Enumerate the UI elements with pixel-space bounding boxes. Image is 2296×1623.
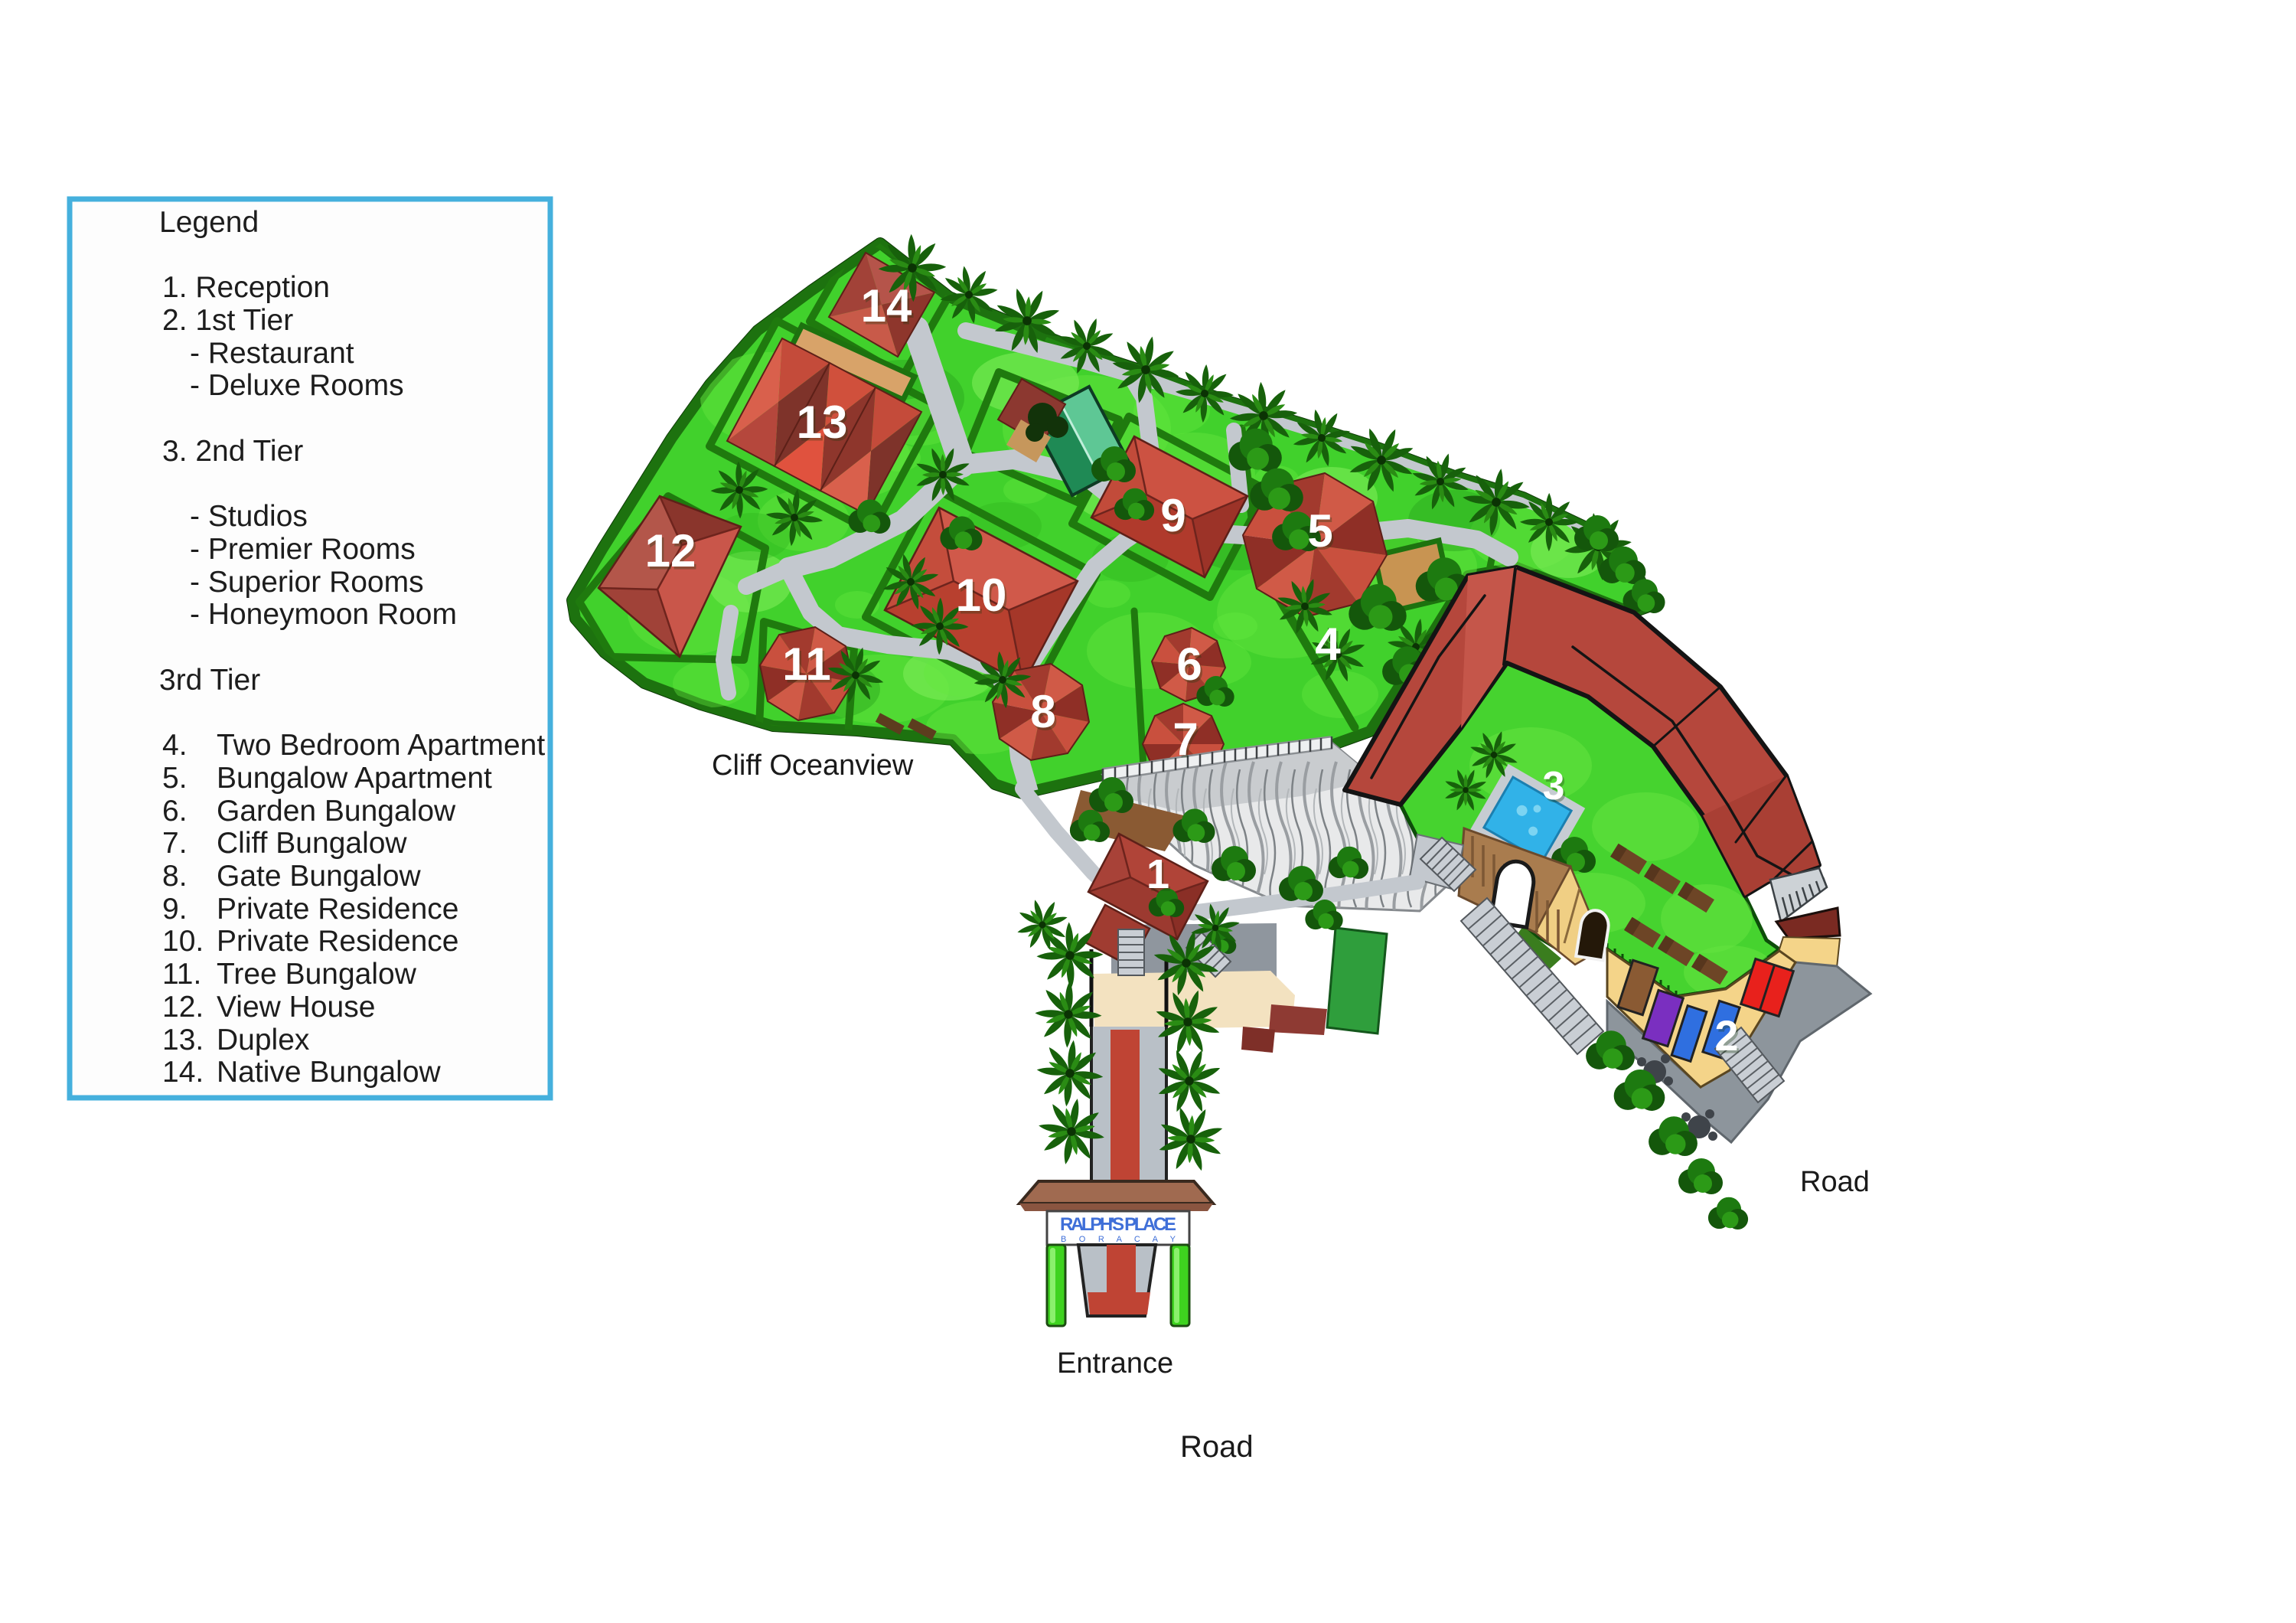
svg-text:Road: Road [1800, 1166, 1870, 1198]
svg-text:RALPH'S PLACE: RALPH'S PLACE [1060, 1214, 1176, 1235]
svg-text:5: 5 [1307, 505, 1332, 557]
svg-text:14.: 14. [162, 1056, 204, 1089]
svg-text:Native Bungalow: Native Bungalow [217, 1056, 442, 1089]
svg-text:13: 13 [797, 397, 848, 448]
svg-text:Garden Bungalow: Garden Bungalow [217, 795, 456, 828]
svg-text:- Superior Rooms: - Superior Rooms [190, 566, 424, 599]
svg-text:- Studios: - Studios [190, 500, 308, 533]
svg-text:Entrance: Entrance [1057, 1347, 1173, 1380]
svg-text:9: 9 [1160, 490, 1186, 541]
svg-text:Cliff Oceanview: Cliff Oceanview [712, 749, 914, 782]
svg-text:Tree Bungalow: Tree Bungalow [217, 958, 417, 991]
svg-text:4: 4 [1315, 619, 1341, 670]
svg-text:Private Residence: Private Residence [217, 893, 459, 926]
svg-text:5.: 5. [162, 762, 188, 795]
svg-text:2. 1st Tier: 2. 1st Tier [162, 304, 293, 337]
svg-text:- Premier Rooms: - Premier Rooms [190, 533, 416, 566]
svg-text:14: 14 [861, 280, 912, 331]
svg-text:Duplex: Duplex [217, 1024, 310, 1056]
svg-text:Road: Road [1180, 1430, 1254, 1464]
svg-text:3: 3 [1543, 764, 1565, 808]
svg-text:Cliff Bungalow: Cliff Bungalow [217, 827, 407, 860]
svg-text:Gate Bungalow: Gate Bungalow [217, 860, 422, 893]
svg-text:4.: 4. [162, 729, 188, 762]
svg-text:- Honeymoon Room: - Honeymoon Room [190, 598, 457, 631]
svg-text:7: 7 [1172, 714, 1198, 765]
svg-text:13.: 13. [162, 1024, 204, 1056]
svg-text:10: 10 [956, 570, 1007, 621]
svg-text:2: 2 [1714, 1011, 1738, 1060]
svg-text:3. 2nd Tier: 3. 2nd Tier [162, 435, 303, 468]
svg-text:10.: 10. [162, 925, 204, 958]
svg-text:3rd Tier: 3rd Tier [159, 664, 260, 697]
svg-text:11: 11 [782, 638, 830, 690]
svg-text:12.: 12. [162, 991, 204, 1024]
svg-text:8: 8 [1030, 686, 1055, 737]
svg-text:Legend: Legend [159, 206, 259, 239]
svg-text:- Restaurant: - Restaurant [190, 337, 354, 370]
svg-text:9.: 9. [162, 893, 188, 926]
svg-text:1: 1 [1146, 851, 1169, 897]
svg-text:7.: 7. [162, 827, 188, 860]
svg-text:View House: View House [217, 991, 375, 1024]
svg-text:- Deluxe Rooms: - Deluxe Rooms [190, 369, 404, 402]
svg-text:8.: 8. [162, 860, 188, 893]
svg-text:1. Reception: 1. Reception [162, 271, 330, 304]
svg-text:Bungalow Apartment: Bungalow Apartment [217, 762, 492, 795]
svg-text:6.: 6. [162, 795, 188, 828]
svg-text:6: 6 [1176, 638, 1202, 690]
svg-text:12: 12 [645, 525, 696, 576]
svg-text:Two Bedroom Apartment: Two Bedroom Apartment [217, 729, 545, 762]
svg-text:11.: 11. [162, 958, 201, 991]
svg-text:Private Residence: Private Residence [217, 925, 459, 958]
